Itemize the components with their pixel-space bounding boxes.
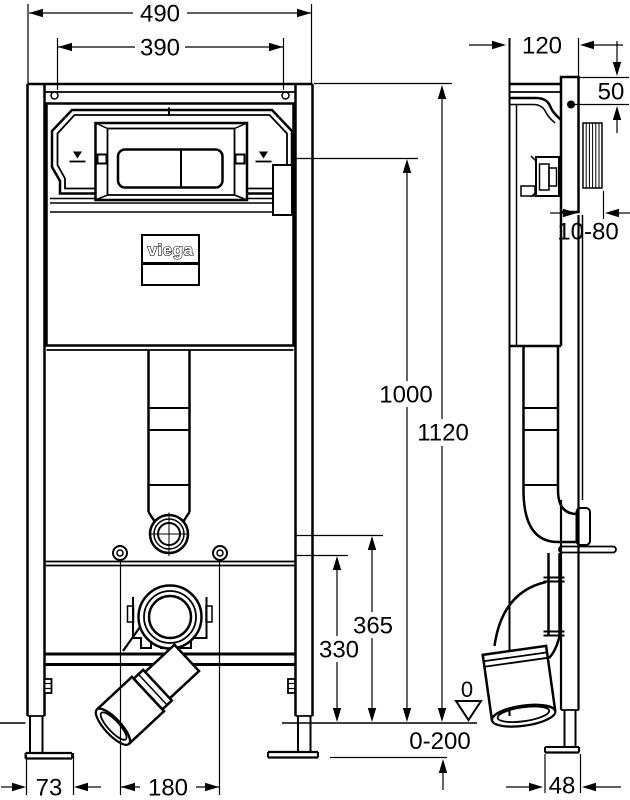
floor-datum: 0 [0, 677, 481, 723]
outlet-flange [123, 586, 212, 652]
svg-text:1120: 1120 [417, 420, 469, 447]
svg-text:490: 490 [140, 1, 180, 28]
side-view [483, 38, 616, 753]
wall-finish-strip [583, 123, 602, 188]
svg-text:390: 390 [140, 35, 180, 62]
dimension-frame-depth: 120 [469, 33, 623, 77]
dimension-top-clearance: 50 [573, 41, 629, 133]
fill-valve-housing [273, 165, 292, 215]
svg-text:330: 330 [319, 637, 359, 664]
svg-text:120: 120 [522, 33, 562, 60]
leg-lock-screw-left [45, 679, 52, 693]
side-foot [545, 710, 579, 753]
flush-pipe-side [524, 346, 578, 542]
svg-text:180: 180 [148, 775, 188, 800]
dimension-foot-offset: 73 [1, 753, 101, 800]
svg-text:0-200: 0-200 [409, 728, 470, 755]
wc-frame-installation-drawing: viega [0, 0, 630, 800]
cistern-side-profile [510, 98, 562, 346]
svg-text:365: 365 [353, 613, 393, 640]
leg-lock-screw-right [288, 679, 295, 693]
svg-text:73: 73 [36, 775, 63, 800]
fixing-hole-left [51, 92, 58, 99]
drain-bend-side [483, 553, 565, 730]
fixing-hole-right [282, 92, 289, 99]
front-view: viega [26, 84, 319, 795]
svg-text:1000: 1000 [379, 382, 432, 409]
dimension-floor-adjustment: 0-200 [330, 728, 471, 790]
plate-screw-left [98, 155, 107, 164]
water-level-icon [256, 152, 272, 162]
svg-text:50: 50 [598, 79, 625, 106]
water-level-icon [70, 152, 86, 162]
dimension-flush-connection-height: 365 [296, 536, 394, 723]
flush-buttons [118, 150, 223, 188]
plate-screw-right [236, 155, 245, 164]
datum-zero-label: 0 [461, 677, 473, 702]
flush-pipe [149, 350, 190, 556]
technical-drawing-page: viega [0, 0, 630, 800]
wall-anchor-rod [559, 547, 616, 553]
flush-actuator-plate [96, 123, 248, 200]
dimension-fixing-bolt-spacing: 180 [121, 775, 219, 800]
outlet-bend-pipe [91, 641, 203, 750]
fixing-bolt-right [213, 546, 227, 560]
svg-text:10-80: 10-80 [557, 219, 618, 246]
dimension-cutout-width: 390 [58, 35, 284, 91]
mounting-plate [561, 77, 579, 212]
datum-level-icon [456, 701, 481, 720]
svg-text:48: 48 [549, 773, 576, 800]
dimension-foot-depth: 48 [506, 754, 621, 800]
flush-plate-recess [50, 108, 293, 216]
fixing-bolt-left [113, 546, 127, 560]
dimension-outlet-height: 330 [296, 556, 360, 723]
brand-logo: viega [142, 235, 199, 285]
brand-logo-text: viega [148, 241, 194, 260]
